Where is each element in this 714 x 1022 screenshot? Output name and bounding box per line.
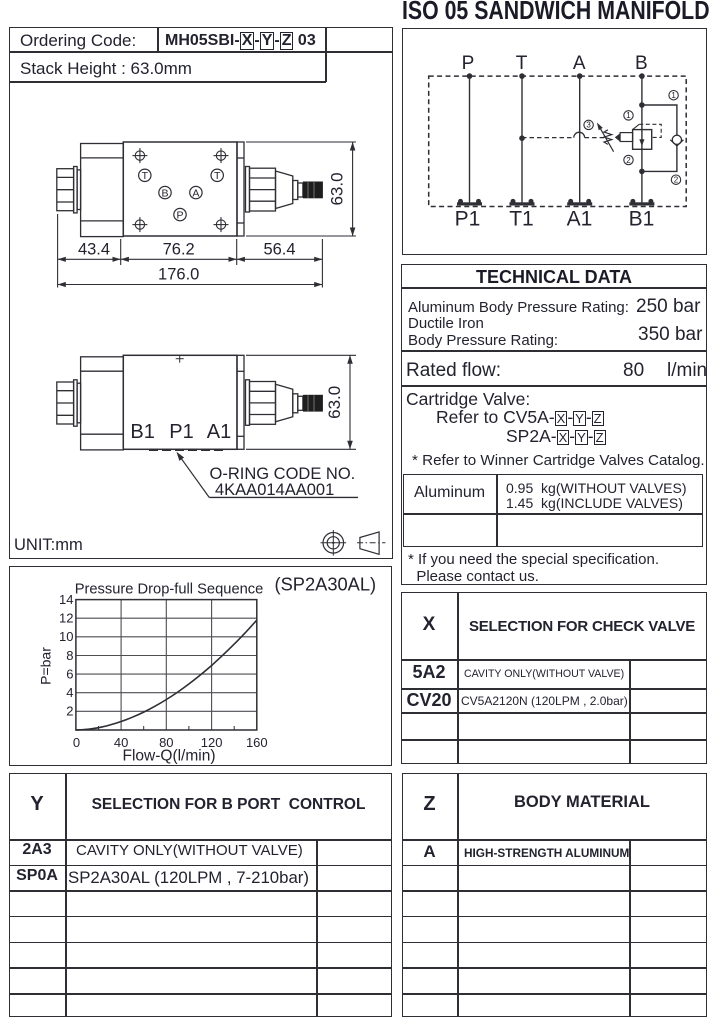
svg-text:2: 2 bbox=[674, 176, 679, 185]
svg-text:A1: A1 bbox=[207, 421, 231, 443]
svg-text:6: 6 bbox=[66, 667, 73, 682]
svg-text:B: B bbox=[161, 187, 168, 199]
svg-text:1: 1 bbox=[626, 111, 631, 120]
svg-text:A: A bbox=[192, 187, 199, 199]
svg-text:4: 4 bbox=[66, 685, 73, 700]
svg-text:A1: A1 bbox=[567, 207, 593, 230]
svg-text:P1: P1 bbox=[169, 421, 193, 443]
svg-text:0: 0 bbox=[73, 735, 80, 750]
svg-text:12: 12 bbox=[59, 611, 73, 626]
svg-text:43.4: 43.4 bbox=[78, 241, 110, 259]
svg-text:2: 2 bbox=[66, 704, 73, 719]
svg-text:UNIT:mm: UNIT:mm bbox=[14, 536, 83, 554]
svg-text:63.0: 63.0 bbox=[325, 386, 344, 419]
svg-text:B1: B1 bbox=[130, 421, 154, 443]
svg-text:A: A bbox=[573, 53, 586, 74]
svg-text:8: 8 bbox=[66, 648, 73, 663]
svg-text:P: P bbox=[462, 53, 475, 74]
svg-text:P: P bbox=[176, 209, 183, 221]
svg-text:(SP2A30AL): (SP2A30AL) bbox=[275, 574, 377, 595]
svg-text:14: 14 bbox=[59, 592, 73, 607]
svg-text:56.4: 56.4 bbox=[263, 241, 295, 259]
svg-text:1: 1 bbox=[671, 91, 676, 100]
svg-text:P=bar: P=bar bbox=[38, 647, 54, 685]
svg-text:63.0: 63.0 bbox=[328, 172, 347, 205]
svg-text:T1: T1 bbox=[509, 207, 534, 230]
svg-text:4KAA014AA001: 4KAA014AA001 bbox=[215, 481, 334, 499]
svg-text:2: 2 bbox=[626, 156, 631, 165]
svg-text:P1: P1 bbox=[455, 207, 481, 230]
svg-text:176.0: 176.0 bbox=[158, 266, 199, 284]
svg-text:10: 10 bbox=[59, 629, 73, 644]
svg-text:T: T bbox=[142, 170, 149, 182]
svg-text:3: 3 bbox=[586, 121, 591, 130]
svg-text:Flow-Q(l/min): Flow-Q(l/min) bbox=[123, 748, 216, 765]
svg-text:76.2: 76.2 bbox=[163, 241, 195, 259]
svg-text:B1: B1 bbox=[629, 207, 655, 230]
svg-text:Pressure Drop-full Sequence: Pressure Drop-full Sequence bbox=[75, 582, 264, 598]
svg-text:B: B bbox=[635, 53, 648, 74]
svg-text:T: T bbox=[214, 170, 221, 182]
svg-text:T: T bbox=[516, 53, 528, 74]
svg-text:160: 160 bbox=[246, 735, 268, 750]
